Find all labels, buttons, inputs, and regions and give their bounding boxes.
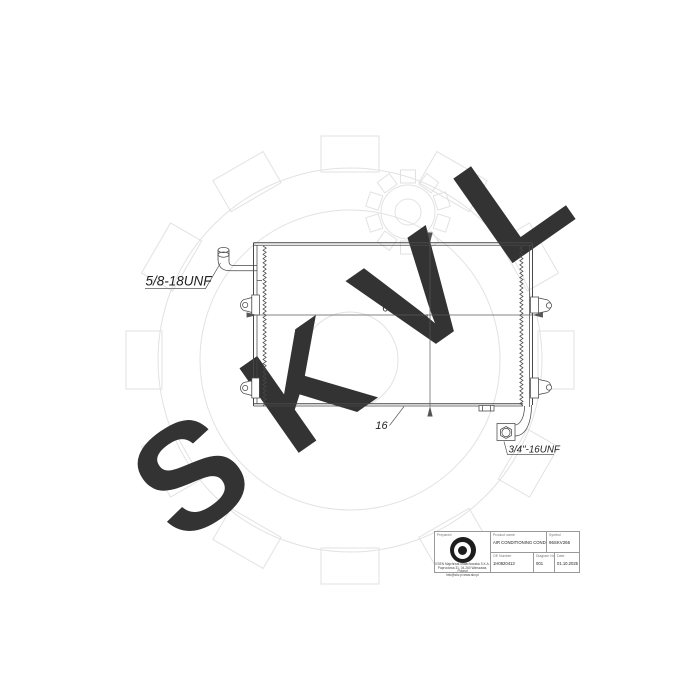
title-block-fields: Product name AIR CONDITIONING CONDENSER … — [491, 532, 579, 572]
bracket-upper-left — [241, 295, 260, 315]
inlet-thread-label: 5/8-18UNF — [146, 274, 213, 289]
dimension-width-value: 610 — [382, 303, 400, 315]
symbol-cell: Symbol 96SKV266 — [547, 532, 579, 552]
title-block: Prepared ESEN Majchrzak Małachowska S.K.… — [434, 531, 580, 573]
title-block-company-cell: Prepared ESEN Majchrzak Małachowska S.K.… — [435, 532, 491, 572]
prepared-label: Prepared — [437, 533, 451, 537]
bracket-upper-right — [531, 297, 552, 313]
product-name-label: Product name — [493, 533, 545, 537]
diagram-no-value: 001 — [536, 561, 553, 566]
date-label: Date — [557, 554, 578, 558]
product-name-value: AIR CONDITIONING CONDENSER — [493, 540, 545, 545]
date-cell: Date 01.10.2025 — [555, 553, 579, 572]
technical-drawing: S K V L — [0, 0, 700, 700]
inlet-thread-callout: 5/8-18UNF — [145, 263, 221, 289]
diagram-no-cell: Diagram No. 001 — [534, 553, 555, 572]
drawing-sheet: S K V L — [0, 0, 700, 700]
product-name-cell: Product name AIR CONDITIONING CONDENSER — [491, 532, 547, 552]
company-logo-ring — [454, 542, 471, 559]
oe-number-value: 1H0820413 — [493, 561, 532, 566]
outlet-thread-label: 3/4"-16UNF — [509, 445, 561, 456]
symbol-label: Symbol — [549, 533, 578, 537]
dimension-depth-value: 16 — [375, 420, 388, 432]
oe-number-cell: OE Number 1H0820413 — [491, 553, 534, 572]
company-line-3: info@skv.pl www.skv.pl — [435, 574, 490, 578]
watermark-letter-s: S — [101, 377, 279, 572]
bracket-lower-right — [531, 378, 552, 398]
company-address: ESEN Majchrzak Małachowska S.K.A. Paproc… — [435, 563, 490, 577]
inlet-fitting — [218, 247, 257, 270]
company-logo — [450, 537, 476, 563]
oe-number-label: OE Number — [493, 554, 532, 558]
symbol-value: 96SKV266 — [549, 540, 578, 545]
bottom-tab — [479, 406, 494, 412]
diagram-no-label: Diagram No. — [536, 554, 553, 558]
outlet-thread-callout: 3/4"-16UNF — [504, 442, 561, 456]
dimension-height-value: 341 — [419, 314, 431, 332]
date-value: 01.10.2025 — [557, 561, 578, 566]
company-logo-core — [458, 546, 467, 555]
